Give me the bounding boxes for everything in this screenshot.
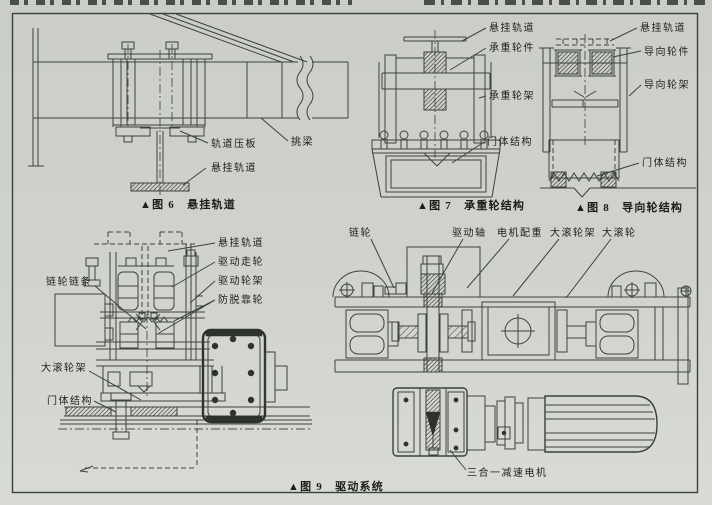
fig6-leader-lines — [180, 118, 288, 185]
fig9-drive-mechanism-left-drawing: 链轮链条 悬挂轨道 驱动走轮 驱动轮架 防脱靠轮 大滚轮架 门体结构 — [41, 232, 312, 472]
fig9r-roller-right-bottom — [600, 336, 634, 354]
fig8-support-left — [551, 172, 566, 187]
fig9l-dashed-outline — [85, 420, 197, 468]
fig9l-outline-arrow — [80, 466, 93, 472]
fig9-drive-system-drawing: 链轮 驱动轴 电机配重 大滚轮架 大滚轮 三合一减速电机 ▲图 9 驱动系统 — [288, 226, 691, 493]
fig7-caption: ▲图 7 承重轮结构 — [417, 198, 525, 212]
sheet-frame — [13, 14, 698, 493]
fig9r-nut-details — [362, 283, 656, 297]
fig9r-roller-blocks — [346, 310, 638, 358]
fig9l-drive-wheel-left — [118, 272, 138, 310]
fig9l-gearbox-side-view — [196, 296, 287, 422]
fig9l-door-hatch-left — [66, 407, 111, 416]
fig7-label-suspension-rail: 悬挂轨道 — [489, 21, 535, 34]
fig6-suspension-rail-drawing: 轨道压板 挑梁 悬挂轨道 ▲图 6 悬挂轨道 — [28, 14, 348, 211]
fig9l-door-hatch-right — [131, 407, 177, 416]
fig9r-label-sprocket: 链轮 — [349, 226, 372, 239]
fig7-label-load-wheel: 承重轮件 — [489, 41, 535, 54]
fig9l-label-sprocket-chain: 链轮链条 — [46, 275, 92, 288]
fig7-label-door-body: 门体结构 — [487, 135, 533, 148]
scanned-manual-page: 轨道压板 挑梁 悬挂轨道 ▲图 6 悬挂轨道 悬挂轨道 承重轮件 承重轮架 — [0, 0, 712, 505]
fig6-diagonal-wall-lines — [150, 14, 307, 62]
fig9r-roller-left-top — [350, 314, 384, 332]
fig9-caption: ▲图 9 驱动系统 — [288, 479, 384, 493]
fig6-label-suspension-rail: 悬挂轨道 — [211, 161, 257, 174]
fig9r-coupling-dot — [502, 431, 506, 435]
fig9l-label-drive-wheel-frame: 驱动轮架 — [218, 274, 264, 287]
fig9r-roller-right-top — [600, 314, 634, 332]
fig6-label-rail-clamp: 轨道压板 — [211, 137, 257, 150]
fig9r-label-big-roller: 大滚轮 — [602, 226, 637, 239]
fig8-label-door-body: 门体结构 — [642, 156, 688, 169]
fig8-label-suspension-rail: 悬挂轨道 — [640, 21, 686, 34]
fig6-label-cantilever-beam: 挑梁 — [291, 135, 314, 148]
fig8-label-guide-wheel: 导向轮件 — [644, 45, 690, 58]
fig9l-label-anti-derail-wheel: 防脱靠轮 — [218, 293, 264, 306]
fig9r-motor-body — [528, 396, 657, 452]
fig9l-left-box — [55, 294, 113, 346]
technical-figure-sheet: 轨道压板 挑梁 悬挂轨道 ▲图 6 悬挂轨道 悬挂轨道 承重轮件 承重轮架 — [0, 0, 712, 505]
fig7-label-load-wheel-frame: 承重轮架 — [489, 89, 535, 102]
fig9r-coupling-discs — [467, 396, 523, 450]
fig9l-dashed-rail — [94, 232, 196, 318]
fig9r-arm-right — [448, 326, 468, 338]
fig9r-label-drive-shaft: 驱动轴 — [452, 226, 487, 239]
fig7-door-body — [372, 149, 500, 197]
fig9r-shaft-collar-bottom — [424, 358, 442, 372]
fig9r-arm-left — [398, 326, 418, 338]
fig9l-wheel-lines — [118, 286, 174, 298]
fig9l-label-door-body: 门体结构 — [47, 394, 93, 407]
fig9r-label-big-roller-frame: 大滚轮架 — [550, 226, 596, 239]
fig8-caption: ▲图 8 导向轮结构 — [575, 200, 683, 214]
fig9r-label-gear-motor: 三合一减速电机 — [467, 466, 548, 479]
fig8-label-guide-wheel-frame: 导向轮架 — [644, 78, 690, 91]
fig8-ground-line — [540, 188, 696, 197]
fig9l-label-drive-wheel: 驱动走轮 — [218, 255, 264, 268]
fig9r-shaft-collar-top — [424, 294, 442, 307]
fig6-beam-break-lines — [297, 56, 313, 120]
fig9l-lower-deck — [96, 360, 225, 401]
fig9r-roller-left-bottom — [350, 336, 384, 354]
fig9l-drive-wheel-right — [154, 272, 174, 310]
fig9l-label-big-roller-frame: 大滚轮架 — [41, 361, 87, 374]
fig9l-label-suspension-rail: 悬挂轨道 — [218, 236, 264, 249]
fig9r-center-gear-block — [448, 288, 688, 384]
fig9r-reducer-gearbox — [393, 388, 467, 456]
fig9r-label-motor-counterweight: 电机配重 — [497, 226, 543, 239]
fig7-load-wheel-drawing: 悬挂轨道 承重轮件 承重轮架 门体结构 ▲图 7 承重轮结构 — [372, 21, 535, 212]
fig8-guide-wheel-drawing: 悬挂轨道 导向轮件 导向轮架 门体结构 ▲图 8 导向轮结构 — [539, 21, 696, 214]
fig6-caption: ▲图 6 悬挂轨道 — [140, 197, 236, 211]
